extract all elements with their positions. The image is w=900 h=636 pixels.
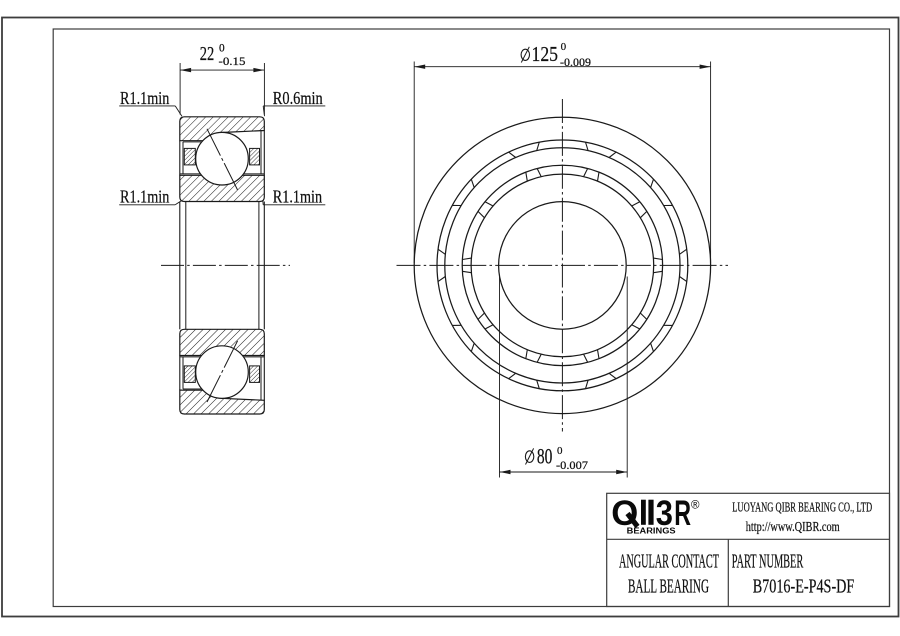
svg-text:22: 22	[200, 43, 215, 65]
svg-text:R1.1min: R1.1min	[120, 88, 169, 108]
svg-text:R0.6min: R0.6min	[273, 88, 323, 108]
svg-text:125: 125	[532, 42, 559, 66]
svg-text:B7016-E-P4S-DF: B7016-E-P4S-DF	[753, 575, 855, 597]
svg-text:PART NUMBER: PART NUMBER	[732, 550, 804, 572]
svg-text:-0.15: -0.15	[219, 55, 246, 68]
svg-text:R1.1min: R1.1min	[273, 187, 322, 207]
svg-text:80: 80	[537, 443, 553, 468]
svg-text:0: 0	[557, 445, 563, 457]
svg-text:BEARINGS: BEARINGS	[627, 526, 677, 535]
svg-text:0: 0	[561, 41, 567, 53]
svg-text:®: ®	[691, 500, 700, 512]
svg-text:http://www.QIBR.com: http://www.QIBR.com	[746, 520, 840, 535]
svg-text:BALL BEARING: BALL BEARING	[628, 575, 709, 597]
svg-text:ANGULAR CONTACT: ANGULAR CONTACT	[619, 550, 719, 572]
svg-text:-0.009: -0.009	[560, 56, 591, 69]
svg-text:-0.007: -0.007	[556, 459, 588, 472]
svg-text:LUOYANG QIBR BEARING CO., LTD: LUOYANG QIBR BEARING CO., LTD	[732, 501, 872, 516]
svg-text:0: 0	[219, 43, 225, 55]
svg-text:R1.1min: R1.1min	[120, 187, 169, 207]
svg-text:R: R	[674, 494, 691, 533]
